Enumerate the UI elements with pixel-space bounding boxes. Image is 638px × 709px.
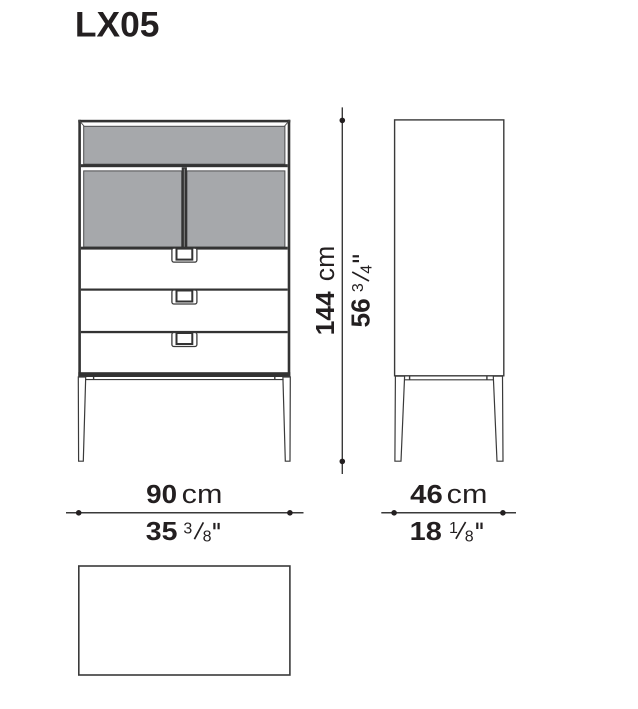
svg-text:18: 18 xyxy=(410,516,442,546)
svg-text:cm: cm xyxy=(447,479,488,509)
svg-text:56: 56 xyxy=(346,298,376,327)
svg-text:46: 46 xyxy=(410,479,443,509)
svg-text:8: 8 xyxy=(203,528,212,545)
svg-text:4: 4 xyxy=(359,265,376,274)
svg-text:1: 1 xyxy=(449,520,458,537)
svg-text:cm: cm xyxy=(310,246,340,282)
svg-text:3: 3 xyxy=(350,283,367,292)
svg-text:35: 35 xyxy=(146,516,178,546)
svg-text:144: 144 xyxy=(310,291,340,335)
svg-text:3: 3 xyxy=(183,520,192,537)
svg-text:cm: cm xyxy=(182,479,223,509)
svg-text:90: 90 xyxy=(146,479,177,509)
svg-text:8: 8 xyxy=(465,529,474,546)
svg-text:LX05: LX05 xyxy=(75,4,160,44)
